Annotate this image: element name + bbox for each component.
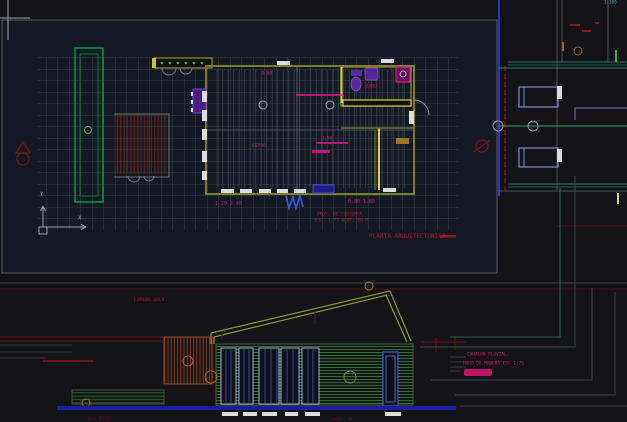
plan-note-2: ESC. 1:75 ACOT. EN M (315, 218, 368, 222)
front-elevation (0, 282, 492, 416)
plan-title: PLANTA ARQUITECTONICA (369, 233, 445, 239)
elevation-note-right-2: MURO DE MADERA ESC 1:75 (463, 361, 524, 365)
note-blob (464, 369, 492, 376)
elevation-windows (221, 348, 319, 404)
corner-scale-label: 1:100 (604, 0, 617, 4)
adjacent-plan-fragment (493, 0, 627, 204)
elevation-note-right-1: CANALON PLUVIAL (467, 352, 507, 356)
cad-linework (0, 0, 627, 422)
dimension-blob (312, 150, 330, 153)
entry-door-ticks (191, 92, 193, 112)
side-platform (72, 390, 164, 404)
joist-hatch (213, 70, 407, 188)
elevation-door (383, 352, 398, 406)
plan-dim-mid: 1.50 (322, 136, 332, 140)
plan-note-1: PROY. DE CUBIERTA (317, 212, 362, 216)
bottom-note-2: ACOT. M (332, 417, 351, 422)
bottom-note-1: ESC 1:75 (88, 416, 110, 421)
room-label-bath: BAÑO (366, 84, 377, 88)
ucs-x-label: X (78, 215, 81, 221)
sill-dashes (222, 412, 401, 416)
counter-block (396, 138, 409, 144)
stair-block (313, 185, 334, 193)
ground-line (57, 406, 456, 410)
ucs-y-label: Y (40, 191, 43, 197)
plan-dim-top: 0.60 (262, 71, 272, 75)
room-label-living: ESTAR (252, 143, 266, 148)
roof-lines (211, 291, 411, 344)
plan-dims-right: 0.90 1.80 (348, 199, 375, 204)
hatched-pad (114, 114, 169, 182)
cad-canvas[interactable]: 1:100 0.60 BAÑO ESTAR 1.50 1.20 2.40 0.9… (0, 0, 627, 422)
elevation-note-left: LAMINA GALV. (134, 297, 167, 302)
plan-dims-left: 1.20 2.40 (215, 201, 242, 206)
floor-plan (191, 59, 429, 194)
